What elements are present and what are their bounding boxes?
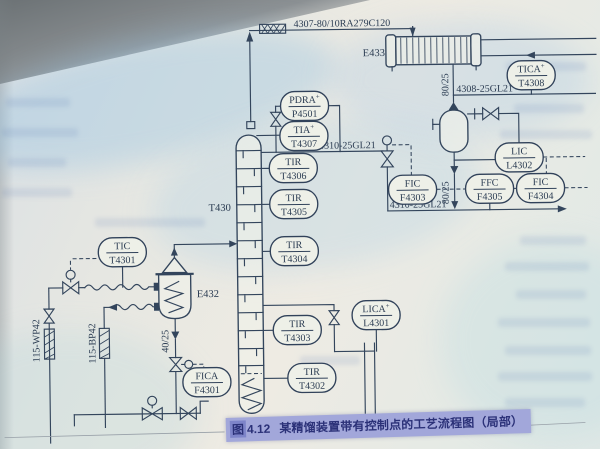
instrument-LICA-L4301: LICA+ L4301 xyxy=(352,300,400,330)
svg-text:T4306: T4306 xyxy=(280,171,306,182)
reflux-drum xyxy=(440,110,469,152)
instrument-FIC-F4304: FIC F4304 xyxy=(516,173,564,203)
pipe-size-40-25: 40/25 xyxy=(160,330,171,353)
distillation-column xyxy=(236,121,265,413)
instrument-TIR-T4306: TIR T4306 xyxy=(269,153,317,183)
svg-text:T4304: T4304 xyxy=(281,254,307,265)
svg-text:T4302: T4302 xyxy=(299,381,325,392)
instrument-PDRA-P4501: PDRA+ P4501 xyxy=(280,91,328,121)
page-rule xyxy=(5,432,225,438)
instrument-TIR-T4305: TIR T4305 xyxy=(270,189,318,219)
instrument-TIC-T4301: TIC T4301 xyxy=(98,237,146,267)
instrument-FICA-F4301: FICA F4301 xyxy=(183,367,231,397)
svg-text:FIC: FIC xyxy=(533,177,549,188)
svg-text:TIC: TIC xyxy=(114,241,131,252)
svg-text:TIR: TIR xyxy=(304,367,321,378)
caption-title: 某精馏装置带有控制点的工艺流程图（局部） xyxy=(279,412,523,436)
svg-text:FICA: FICA xyxy=(195,371,219,382)
instrument-TIR-T4302: TIR T4302 xyxy=(288,363,336,393)
svg-text:TIR: TIR xyxy=(286,240,303,251)
instrument-TIR-T4304: TIR T4304 xyxy=(270,236,318,266)
svg-text:F4301: F4301 xyxy=(194,385,220,396)
svg-text:L4302: L4302 xyxy=(506,160,532,171)
svg-text:L4301: L4301 xyxy=(363,318,389,329)
instrument-TIA-T4307: TIA+ T4307 xyxy=(280,121,328,151)
svg-text:T4301: T4301 xyxy=(109,255,135,266)
instrument-signal-lines xyxy=(69,142,590,368)
process-flow-diagram: 4307-80/10RA279C120 4308-25GL21 4310-25G… xyxy=(0,0,600,449)
reboiler-nozzle xyxy=(154,283,159,291)
pipe-labels: 4307-80/10RA279C120 4308-25GL21 4310-25G… xyxy=(28,16,517,364)
instrument-FIC-F4303: FIC F4303 xyxy=(388,175,436,205)
condenser-E433 xyxy=(386,34,481,71)
pipe-label-condensate: 4308-25GL21 xyxy=(456,83,513,95)
svg-text:LICA+: LICA+ xyxy=(362,302,390,315)
svg-text:FIC: FIC xyxy=(405,179,421,190)
column-top-nozzle xyxy=(247,122,255,129)
svg-text:TICA+: TICA+ xyxy=(517,62,545,75)
svg-text:PDRA+: PDRA+ xyxy=(289,93,320,106)
svg-text:F4304: F4304 xyxy=(528,191,554,202)
reboiler-nozzle xyxy=(154,303,159,311)
caption-figure-number: 4.12 xyxy=(247,422,271,437)
instrument-LIC-L4302: LIC L4302 xyxy=(495,143,543,173)
svg-text:T4308: T4308 xyxy=(518,78,544,89)
utility-label-wp42: 115-WP42 xyxy=(31,319,43,362)
equipment-label-column: T430 xyxy=(209,203,231,214)
utility-label-bp42: 115-BP42 xyxy=(87,323,98,363)
svg-text:TIR: TIR xyxy=(289,319,306,330)
svg-text:T4307: T4307 xyxy=(291,139,317,150)
caption-figure-char: 图 xyxy=(230,420,247,437)
svg-text:FFC: FFC xyxy=(481,178,499,189)
inline-fitting-hatched xyxy=(99,328,109,358)
svg-text:F4305: F4305 xyxy=(477,192,503,203)
pipe-label-overhead: 4307-80/10RA279C120 xyxy=(293,18,390,30)
inline-fitting-hatched xyxy=(260,24,286,33)
svg-text:TIR: TIR xyxy=(285,157,302,168)
svg-text:LIC: LIC xyxy=(511,146,528,157)
reboiler-E432 xyxy=(153,257,193,318)
svg-text:TIR: TIR xyxy=(286,193,303,204)
pipe-size-80-25: 80/25 xyxy=(440,73,451,96)
valves-and-fittings xyxy=(41,22,503,422)
equipment-label-reboiler: E432 xyxy=(197,289,219,300)
equipment-label-condenser: E433 xyxy=(363,48,385,59)
photographed-textbook-page: 4307-80/10RA279C120 4308-25GL21 4310-25G… xyxy=(0,0,600,449)
instrument-TICA-T4308: TICA+ T4308 xyxy=(507,60,555,90)
svg-text:T4303: T4303 xyxy=(284,333,310,344)
instrument-TIR-T4303: TIR T4303 xyxy=(273,315,321,345)
svg-text:P4501: P4501 xyxy=(292,109,318,120)
instrument-FFC-F4305: FFC F4305 xyxy=(465,174,513,204)
pipe-size-80-25: 80/25 xyxy=(440,181,451,204)
svg-text:F4303: F4303 xyxy=(400,192,426,203)
svg-text:T4305: T4305 xyxy=(281,207,307,218)
